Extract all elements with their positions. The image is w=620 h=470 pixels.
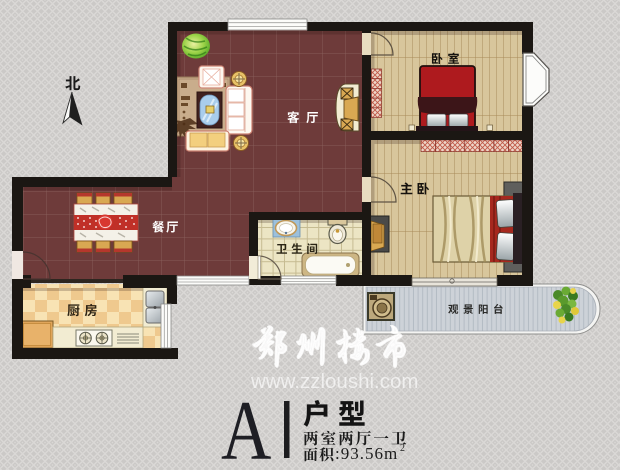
svg-text:2: 2 <box>400 443 405 454</box>
svg-text:www.zzloushi.com: www.zzloushi.com <box>250 370 418 393</box>
svg-text:A: A <box>221 384 271 470</box>
svg-text::93.56m: :93.56m <box>335 444 398 463</box>
